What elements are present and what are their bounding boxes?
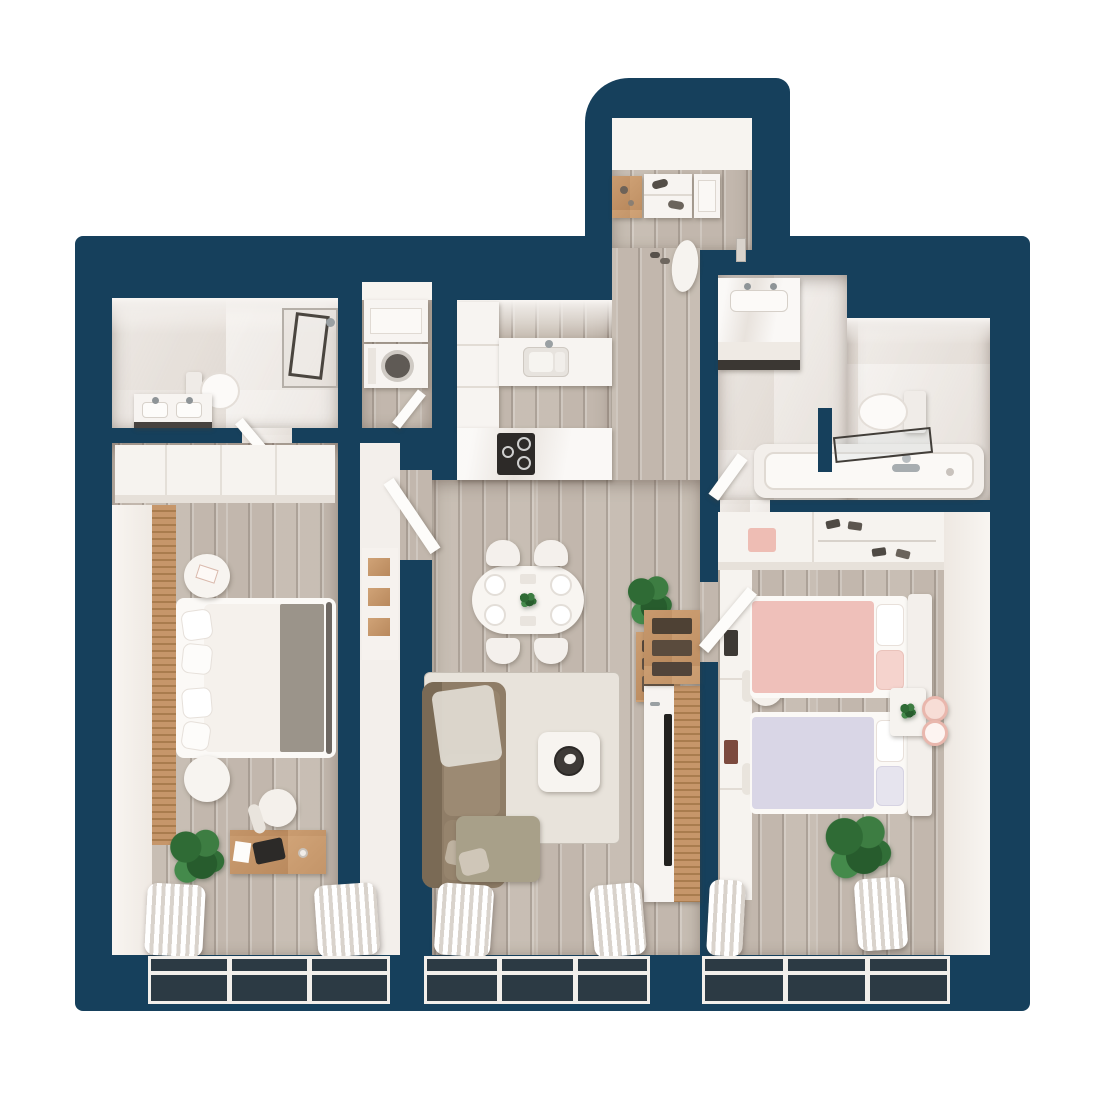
blanket-master (280, 604, 324, 752)
window-mullion-v1 (497, 959, 502, 1001)
curtain-living-2 (589, 882, 647, 958)
curtain-kids-1 (706, 879, 746, 957)
table-centerpiece-plant (518, 592, 538, 608)
hob-ring-1 (517, 437, 531, 451)
window-mullion-v2 (573, 959, 578, 1001)
sofa-throw-blanket (431, 684, 503, 768)
plate-1 (484, 574, 506, 596)
shoe-pair-b (667, 200, 684, 211)
bed-kids-lavender (750, 712, 908, 814)
plant-kids (820, 810, 896, 884)
bed-kids-pink (750, 596, 908, 698)
wardrobe-kids (718, 512, 944, 570)
toilet-bowl-right (858, 393, 908, 431)
shoe-pair-a (651, 178, 669, 190)
window-rail (151, 971, 387, 975)
book-slot-2 (652, 640, 692, 656)
tv-cabinet-living (644, 686, 700, 902)
cabinet-door-panel (698, 180, 716, 212)
desk-cup (298, 848, 308, 858)
vanity-faucet-b (770, 283, 777, 290)
curtain-living-1 (434, 882, 495, 958)
shower-glass-door (288, 312, 330, 380)
curtain-bedroom-2 (314, 882, 381, 958)
vanity-faucet-a (744, 283, 751, 290)
nightstand-kids (890, 688, 926, 736)
sink-bowl (529, 352, 553, 372)
console-entrance (612, 176, 642, 218)
curtain-kids-2 (854, 876, 909, 951)
slat-accent-wall-bedroom (152, 505, 176, 845)
folded-clothes-pink (748, 528, 776, 552)
mirror-kids-a (922, 696, 948, 722)
kids-desk-books-1 (724, 630, 738, 656)
pillow-2 (181, 643, 214, 676)
tub-drain (946, 468, 954, 476)
threshold-bathroom-right (720, 500, 770, 512)
console-deco (628, 200, 634, 206)
pillow-1 (180, 608, 214, 642)
window-bedroom (148, 956, 390, 1004)
pillow-4 (180, 720, 212, 752)
duvet-lavender (752, 717, 874, 809)
wardrobe-shade (115, 495, 335, 503)
faucet-b (186, 397, 193, 404)
wallface-bathroom-right-step (847, 318, 990, 344)
shoes-entrance-floor (650, 252, 672, 265)
slat-panel-living (674, 686, 700, 902)
niche-box-1 (368, 558, 390, 576)
kitchen-faucet (545, 340, 553, 348)
laptop (252, 837, 286, 865)
shoe-3 (872, 547, 887, 557)
counter-kitchen-sink (499, 338, 612, 386)
shoe-2 (848, 521, 863, 531)
book-slot-1 (652, 618, 692, 634)
shelf-storage-niche (362, 548, 398, 660)
window-mullion-v2 (307, 959, 312, 1001)
coffee-table (538, 732, 600, 792)
washer-panel (368, 348, 376, 384)
pillow-lav-b (876, 766, 904, 806)
book-slot-3 (652, 662, 692, 676)
window-kids (702, 956, 950, 1004)
wallface-entrance-top (612, 118, 752, 170)
vanity-front (718, 342, 800, 360)
nightstand-bedroom-top (184, 554, 230, 598)
cabinet-seam-2 (457, 386, 499, 388)
floor-storage-niche (360, 443, 400, 955)
window-living (424, 956, 650, 1004)
vanity-slot (718, 360, 800, 370)
placemat-1 (520, 574, 536, 584)
kids-wardrobe-shade (718, 562, 944, 570)
mirror-kids-b (922, 720, 948, 746)
induction-hob (497, 433, 535, 475)
tub-faucet (892, 464, 920, 472)
sofa-chaise (456, 816, 540, 882)
plant-bedroom (166, 824, 228, 888)
bookshelf-living (644, 610, 700, 684)
nightstand-plant-kids (899, 702, 917, 720)
wall-stub-bathroom-right (818, 408, 832, 472)
shoe-4 (895, 548, 911, 559)
wallface-bedroom-left (112, 505, 152, 955)
dining-chair-2 (534, 540, 568, 566)
basin-b (176, 402, 202, 418)
wallface-kids-right (944, 512, 990, 955)
hob-ring-2 (517, 456, 531, 470)
shower-head (326, 318, 335, 327)
upper-cabinet-utility (364, 300, 428, 342)
plate-2 (550, 574, 572, 596)
nightstand-deco (195, 564, 218, 583)
basin-a (142, 402, 168, 418)
tv-screen (664, 714, 672, 866)
base-cabinets-kitchen (457, 302, 499, 428)
kids-desk-books-2 (724, 740, 738, 764)
shoe-cabinet-entrance (644, 174, 692, 218)
wardrobe-bedroom (115, 445, 335, 503)
pillow-3 (181, 687, 214, 720)
vanity-bathroom-right (718, 278, 800, 370)
pillow-pink-a (876, 604, 904, 646)
shoe-right (660, 258, 670, 264)
chaise-pillow (458, 847, 491, 877)
shoe-1 (825, 519, 840, 530)
console-vase (620, 186, 628, 194)
bed-footboard (326, 602, 332, 754)
desk-bedroom (230, 830, 326, 874)
dining-chair-1 (486, 540, 520, 566)
shower-bathroom-left (282, 308, 338, 388)
shelf-line (644, 194, 692, 196)
vanity-shadow-slot (134, 422, 212, 428)
cabinet-seam-1 (457, 344, 499, 346)
niche-box-3 (368, 618, 390, 636)
desk-paper (233, 841, 252, 863)
bed-master (176, 598, 336, 758)
plate-4 (550, 604, 572, 626)
duvet-pink (752, 601, 874, 693)
nightstand-bedroom-bottom (184, 756, 230, 802)
door-handle-living (650, 702, 660, 706)
washer-drum (381, 350, 414, 382)
picture-entrance-wall (736, 238, 746, 262)
window-rail (427, 971, 647, 975)
wardrobe-rail (818, 540, 936, 542)
vanity-basin-right (730, 290, 788, 312)
sink-drainer (555, 352, 565, 372)
vanity-bathroom-left (134, 394, 212, 428)
headboard-kids-pink (908, 594, 932, 700)
washing-machine (364, 344, 428, 388)
pillow-pink-b (876, 650, 904, 690)
cabinet-front (370, 308, 422, 334)
peninsula-counter-kitchen (457, 428, 612, 480)
window-mullion-v1 (783, 959, 788, 1001)
window-mullion-v2 (865, 959, 870, 1001)
dining-table (472, 566, 584, 634)
curtain-bedroom-1 (144, 883, 206, 958)
side-cabinet-entrance (694, 174, 720, 218)
window-mullion-v1 (227, 959, 232, 1001)
shoe-left (650, 252, 660, 258)
plate-3 (484, 604, 506, 626)
window-rail (705, 971, 947, 975)
faucet-a (152, 397, 159, 404)
wallface-utility-top (362, 282, 432, 300)
placemat-2 (520, 616, 536, 626)
hob-ring-3 (502, 446, 514, 458)
floor-plan (0, 0, 1104, 1104)
niche-box-2 (368, 588, 390, 606)
